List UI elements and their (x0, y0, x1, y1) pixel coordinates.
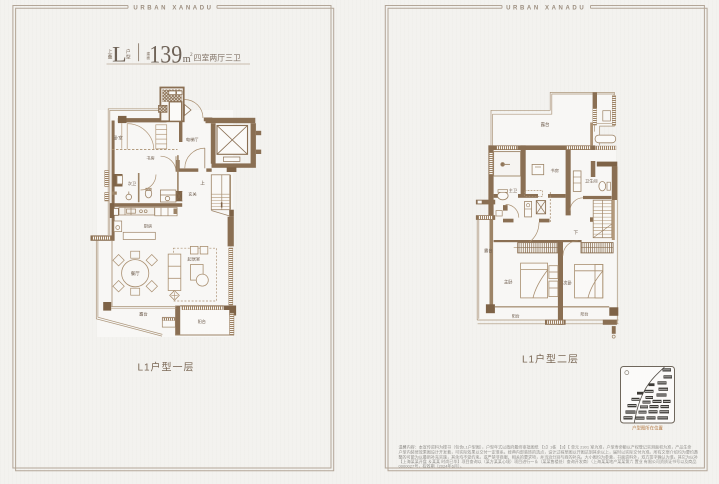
svg-text:0000027号，有效期（2024年6月）。: 0000027号，有效期（2024年6月）。 (399, 462, 464, 468)
svg-text:露台: 露台 (484, 247, 492, 254)
svg-text:2: 2 (190, 52, 193, 58)
svg-text:餐厅: 餐厅 (131, 270, 140, 277)
svg-text:L: L (112, 42, 127, 66)
svg-text:书房: 书房 (551, 167, 559, 174)
svg-text:露台: 露台 (139, 310, 147, 317)
svg-text:卧室: 卧室 (114, 135, 123, 142)
svg-text:户: 户 (126, 48, 131, 55)
svg-text:次卫: 次卫 (128, 180, 136, 187)
svg-text:四室两厅三卫: 四室两厅三卫 (194, 53, 241, 63)
svg-text:阳台: 阳台 (512, 312, 520, 318)
svg-text:上: 上 (200, 179, 205, 185)
svg-text:主卫: 主卫 (509, 187, 517, 193)
svg-text:玄关: 玄关 (188, 190, 196, 197)
svg-text:阳台: 阳台 (581, 310, 589, 316)
svg-text:厨房: 厨房 (144, 222, 152, 229)
svg-text:主卧: 主卧 (504, 279, 513, 286)
svg-text:电梯厅: 电梯厅 (186, 136, 199, 143)
svg-text:型: 型 (126, 54, 131, 61)
svg-text:L1户型二层: L1户型二层 (522, 353, 579, 366)
svg-text:阳台: 阳台 (198, 318, 206, 325)
svg-text:起居室: 起居室 (188, 256, 201, 263)
svg-text:L1户型一层: L1户型一层 (137, 361, 194, 374)
svg-text:户型图所在位置: 户型图所在位置 (632, 425, 663, 432)
svg-text:次卧: 次卧 (563, 280, 572, 287)
svg-text:卫生间: 卫生间 (585, 177, 598, 184)
svg-text:139: 139 (149, 41, 182, 69)
svg-text:露台: 露台 (541, 121, 550, 128)
svg-text:URBAN XANADU: URBAN XANADU (506, 6, 586, 12)
svg-text:书房: 书房 (146, 155, 154, 162)
svg-text:URBAN XANADU: URBAN XANADU (133, 6, 213, 12)
